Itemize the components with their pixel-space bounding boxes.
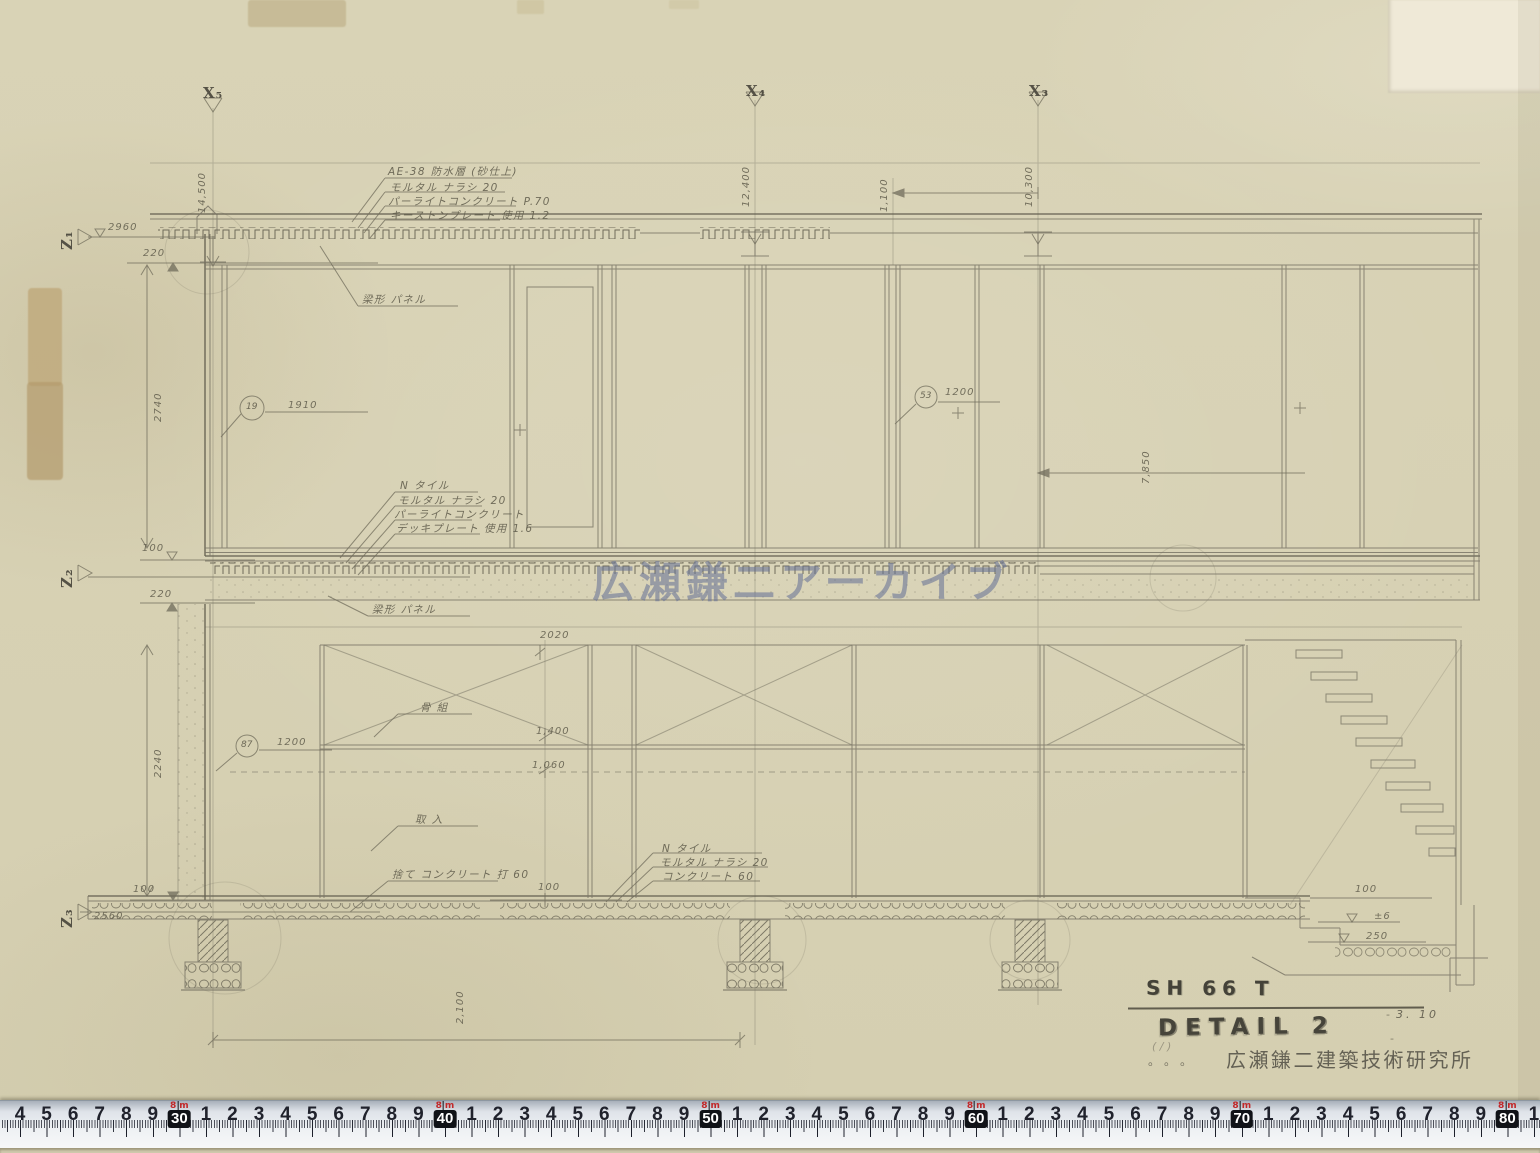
note-roof-waterproofing: AE-38 防水層 (砂仕上) [388,164,518,179]
note-2f-mortar: モルタル ナラシ 20 [398,493,507,508]
note-1f-tile: N タイル [662,841,712,856]
grid-label-z2: Z₂ [58,568,76,588]
paper-edge-below-tape [0,1148,1540,1153]
dim-1910: 1910 [288,400,317,411]
ruler-decade-marker: 8m30 [168,1101,191,1128]
ruler-decade-box: 60 [965,1110,988,1128]
ruler-number: 5 [1369,1104,1380,1126]
ruler-number: 8 [652,1104,663,1126]
ruler-decade-marker: 8m40 [434,1101,457,1128]
ruler-number: 7 [94,1104,105,1126]
ruler-number: 1 [201,1104,212,1126]
dim-grid-x3: 10,300 [1024,166,1035,207]
ruler-meter-label: 8m [1496,1101,1519,1110]
office-stamp: 広瀬鎌二建築技術研究所 [1226,1044,1474,1073]
sheet-date: 3. 10 [1396,1008,1439,1021]
pencil-dash: - [1386,1008,1390,1021]
ruler-number: 4 [1077,1104,1088,1126]
note-1f-concrete: コンクリート 60 [662,869,754,884]
dim-100-z2: 100 [142,543,164,554]
sheet-title-stamp: DETAIL 2 [1158,1013,1336,1041]
dim-1200-upper: 1200 [945,387,974,398]
dim-1060: 1,060 [532,760,566,771]
ruler-meter-label: 8m [434,1101,457,1110]
ruler-number: 5 [838,1104,849,1126]
ruler-number: 4 [15,1104,26,1126]
ruler-number: 8 [121,1104,132,1126]
ruler-number: 2 [227,1104,238,1126]
ruler-number: 5 [41,1104,52,1126]
note-lean-concrete: 捨て コンクリート 打 60 [392,867,529,882]
detail-ref-87: 87 [241,740,252,750]
ruler-meter-label: 8m [1230,1101,1253,1110]
ruler-number: 7 [1157,1104,1168,1126]
ruler-number: 1 [466,1104,477,1126]
ruler-number: 3 [1051,1104,1062,1126]
ruler-number: 4 [280,1104,291,1126]
note-roof-perlite: パーライトコンクリート P.70 [388,194,551,209]
ruler-number: 9 [679,1104,690,1126]
dim-1200-lower: 1200 [277,737,306,748]
ruler-number: 9 [1476,1104,1487,1126]
grid-label-x4: X₄ [746,82,766,100]
ruler-number: 6 [333,1104,344,1126]
dim-footing-span: 2,100 [455,990,466,1024]
ruler-decade-box: 70 [1230,1110,1253,1128]
grid-label-z1: Z₁ [58,230,76,250]
dim-grid-x4: 12,400 [741,166,752,207]
ruler-decade-box: 50 [699,1110,722,1128]
ruler-number: 1 [1529,1104,1540,1126]
note-roof-keystone-plate: キーストンプレート 使用 1.2 [390,208,550,223]
note-beam-panel-upper: 梁形 パネル [362,292,426,307]
ruler-number: 3 [519,1104,530,1126]
ruler-meter-label: 8m [168,1101,191,1110]
note-1f-mortar: モルタル ナラシ 20 [660,855,769,870]
note-2f-tile: N タイル [400,478,450,493]
level-250: 250 [1366,931,1388,942]
ruler-number: 6 [1130,1104,1141,1126]
detail-ref-19: 19 [246,402,257,412]
ruler-number: 7 [891,1104,902,1126]
ruler-number: 8 [1183,1104,1194,1126]
ruler-number: 9 [1210,1104,1221,1126]
ruler-number: 9 [148,1104,159,1126]
dim-2740: 2740 [153,393,164,422]
note-2f-deckplate: デッキプレート 使用 1.6 [396,521,533,536]
ruler-number: 8 [1449,1104,1460,1126]
level-pm6: ±6 [1374,911,1391,922]
note-roof-mortar: モルタル ナラシ 20 [390,180,499,195]
ruler-decade-marker: 8m70 [1230,1101,1253,1128]
dim-1400: 1,400 [536,726,570,737]
ruler-number: 6 [599,1104,610,1126]
grid-label-x3: X₃ [1029,82,1049,100]
ruler-number: 8 [918,1104,929,1126]
note-2f-perlite: パーライトコンクリート [394,507,525,522]
ruler-number: 2 [1024,1104,1035,1126]
dim-100-floor: 100 [538,882,560,893]
note-intake: 取 入 [415,812,444,827]
ruler-number: 2 [493,1104,504,1126]
ruler-number: 9 [944,1104,955,1126]
dim-100-z3: 100 [133,884,155,895]
ruler-number: 5 [1104,1104,1115,1126]
ruler-number: 1 [732,1104,743,1126]
note-beam-panel-lower: 梁形 パネル [372,602,436,617]
ruler-number: 3 [785,1104,796,1126]
dim-2240: 2240 [153,749,164,778]
archive-watermark: 広瀬鎌二アーカイブ [592,549,1012,610]
ruler-number: 1 [997,1104,1008,1126]
ruler-number: 2 [758,1104,769,1126]
ruler-decade-marker: 8m60 [965,1101,988,1128]
registration-dots: 。。。 [1148,1052,1202,1069]
ruler-number: 3 [254,1104,265,1126]
ruler-decade-box: 40 [434,1110,457,1128]
ruler-number: 4 [1343,1104,1354,1126]
dim-2960: 2960 [108,222,137,233]
ruler-number: 1 [1263,1104,1274,1126]
dim-7850: 7,850 [1141,450,1152,484]
ruler-meter-label: 8m [699,1101,722,1110]
dim-220-z2: 220 [150,589,172,600]
ruler-number: 4 [812,1104,823,1126]
project-code-stamp: SH 66 T [1146,976,1275,1001]
ruler-number: 7 [626,1104,637,1126]
ruler-number: 9 [413,1104,424,1126]
dim-100-pit: 100 [1355,884,1377,895]
ruler-number: 3 [1316,1104,1327,1126]
dim-220-upper: 220 [143,248,165,259]
ruler-number: 5 [307,1104,318,1126]
ruler-decade-marker: 8m80 [1496,1101,1519,1128]
grid-label-z3: Z₃ [58,908,76,928]
scanned-blueprint-sheet: X₅X₄X₃Z₁Z₂Z₃AE-38 防水層 (砂仕上)モルタル ナラシ 20パー… [0,0,1540,1153]
ruler-number: 2 [1290,1104,1301,1126]
ruler-number: 8 [387,1104,398,1126]
ruler-decade-box: 80 [1496,1110,1519,1128]
dim-2020: 2020 [540,630,569,641]
measuring-tape: 4567898m301234567898m401234567898m501234… [0,1100,1540,1149]
ruler-number: 6 [1396,1104,1407,1126]
ruler-number: 4 [546,1104,557,1126]
dim-2560: 2560 [94,911,123,922]
ruler-number: 7 [1422,1104,1433,1126]
detail-ref-53: 53 [920,391,931,401]
ruler-decade-box: 30 [168,1110,191,1128]
ruler-number: 5 [572,1104,583,1126]
ruler-number: 7 [360,1104,371,1126]
ruler-number: 6 [68,1104,79,1126]
ruler-decade-marker: 8m50 [699,1101,722,1128]
grid-label-x5: X₅ [203,84,223,102]
ruler-number: 6 [865,1104,876,1126]
ruler-meter-label: 8m [965,1101,988,1110]
dim-grid-x5: 14,500 [197,172,208,213]
note-frame: 骨 組 [420,700,449,715]
dim-1100: 1,100 [879,178,890,212]
